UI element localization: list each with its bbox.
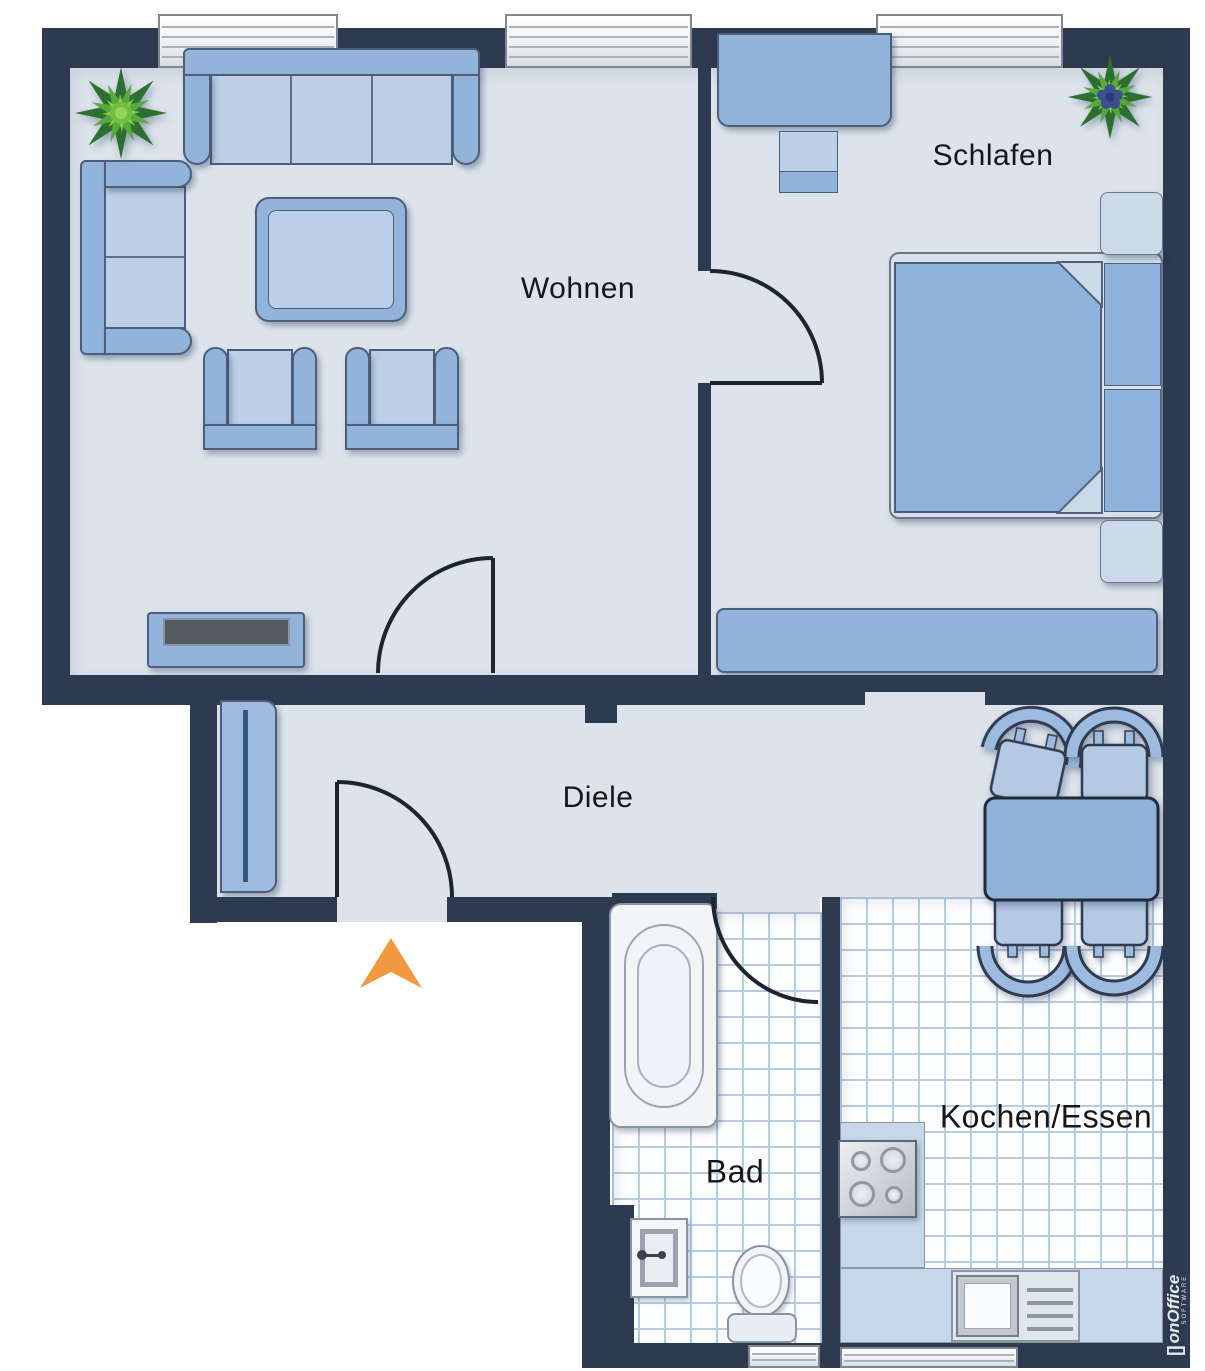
wall-bath-kitchen bbox=[822, 897, 840, 1368]
bath-sink-faucet-knob bbox=[658, 1251, 666, 1259]
window-bath bbox=[748, 1345, 820, 1368]
coffee-table-top bbox=[268, 210, 394, 309]
entrance-arrow-icon bbox=[360, 938, 422, 988]
tv-screen bbox=[163, 618, 290, 646]
desk bbox=[717, 33, 892, 127]
wall-stub bbox=[585, 705, 617, 723]
wall-left bbox=[42, 28, 70, 705]
room-label-bath: Bad bbox=[706, 1154, 764, 1191]
wall-divider-lower bbox=[698, 383, 711, 675]
nightstand-bottom bbox=[1100, 520, 1163, 583]
room-label-kitchen: Kochen/Essen bbox=[940, 1099, 1152, 1136]
bath-sink-faucet-knob bbox=[637, 1250, 647, 1260]
kitchen-drainer-line bbox=[1027, 1288, 1073, 1292]
sofa-back bbox=[183, 48, 480, 76]
kitchen-drainer-line bbox=[1027, 1301, 1073, 1305]
wall-middle-horizontal bbox=[42, 675, 1163, 705]
toilet-seat bbox=[740, 1254, 782, 1308]
armchair-2-seat bbox=[369, 349, 435, 426]
room-label-hall: Diele bbox=[563, 781, 634, 815]
armchair-1-armrest-right bbox=[292, 347, 317, 426]
armchair-1-seat bbox=[227, 349, 293, 426]
armchair-2-back bbox=[345, 424, 459, 450]
wall-divider-upper bbox=[698, 68, 711, 271]
sofa-armrest-right bbox=[452, 74, 480, 165]
floor-plan: Wohnen Schlafen Diele Bad Kochen/Essen [… bbox=[0, 0, 1205, 1371]
sofa-seat bbox=[210, 74, 453, 165]
loveseat-armrest-bottom bbox=[104, 327, 192, 355]
bed-pillow-top bbox=[1104, 263, 1161, 386]
wall-hall-left bbox=[190, 705, 217, 923]
kitchen-sink-basin bbox=[964, 1283, 1011, 1329]
loveseat-armrest-top bbox=[104, 160, 192, 188]
loveseat-back bbox=[80, 160, 106, 355]
sofa-cushion-divider bbox=[290, 76, 292, 163]
onoffice-sub: SOFTWARE bbox=[1182, 1275, 1188, 1325]
armchair-1-armrest-left bbox=[203, 347, 228, 426]
toilet-tank bbox=[727, 1313, 797, 1343]
nightstand-top bbox=[1100, 192, 1163, 255]
armchair-2-armrest-right bbox=[434, 347, 459, 426]
wall-hall-bottom-left bbox=[190, 897, 337, 922]
onoffice-watermark: [] onOffice SOFTWARE bbox=[1161, 1224, 1191, 1356]
sofa-armrest-left bbox=[183, 74, 211, 165]
entrance-threshold bbox=[337, 897, 447, 922]
wall-right bbox=[1163, 28, 1190, 1368]
bedroom-sideboard bbox=[716, 608, 1158, 673]
stove-burner bbox=[849, 1181, 875, 1207]
hall-wardrobe bbox=[220, 700, 277, 893]
bed-blanket bbox=[894, 262, 1102, 513]
onoffice-brand: onOffice bbox=[1165, 1275, 1182, 1344]
loveseat-cushion-divider bbox=[106, 256, 184, 258]
kitchen-drainer-line bbox=[1027, 1327, 1073, 1331]
hall-floor bbox=[217, 705, 1163, 897]
hall-wardrobe-handle bbox=[243, 710, 248, 882]
stove bbox=[838, 1140, 917, 1218]
room-label-bedroom: Schlafen bbox=[933, 139, 1054, 173]
window-living-2 bbox=[505, 14, 692, 68]
bed-pillow-bottom bbox=[1104, 389, 1161, 512]
armchair-2-armrest-left bbox=[345, 347, 370, 426]
wall-middle-notch bbox=[865, 692, 985, 705]
window-kitchen bbox=[840, 1347, 1018, 1368]
kitchen-drainer-line bbox=[1027, 1314, 1073, 1318]
stove-burner bbox=[851, 1151, 871, 1171]
stove-burner bbox=[885, 1186, 903, 1204]
bathtub-basin bbox=[637, 944, 691, 1088]
bath-threshold bbox=[717, 893, 820, 912]
wall-bath-left bbox=[582, 897, 610, 1368]
desk-chair-seat bbox=[779, 131, 838, 173]
stove-burner bbox=[880, 1147, 906, 1173]
desk-chair-back bbox=[779, 171, 838, 193]
sofa-cushion-divider bbox=[371, 76, 373, 163]
room-label-living: Wohnen bbox=[521, 272, 635, 306]
window-bedroom bbox=[876, 14, 1063, 68]
armchair-1-back bbox=[203, 424, 317, 450]
onoffice-bracket-icon: [] bbox=[1165, 1347, 1187, 1356]
